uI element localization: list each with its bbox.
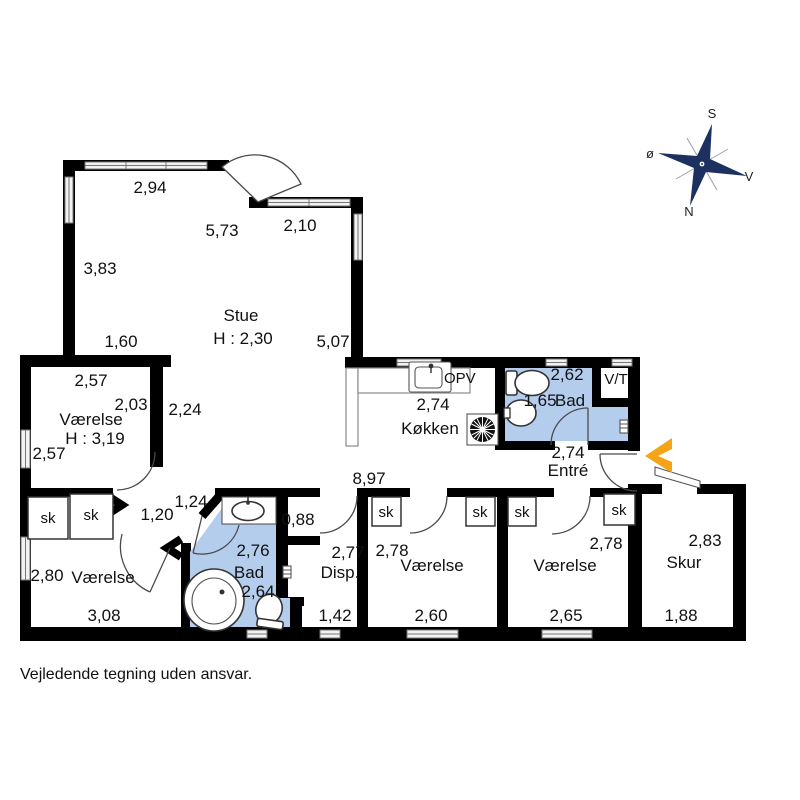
room-label-bl: Værelse bbox=[71, 568, 134, 587]
dim: 0,88 bbox=[281, 510, 314, 529]
dim: 2,76 bbox=[236, 541, 269, 560]
closet-label: sk bbox=[515, 504, 531, 521]
door-arc-room-right bbox=[552, 496, 590, 534]
room-label-skur: Skur bbox=[667, 553, 702, 572]
dim: 2,80 bbox=[30, 566, 63, 585]
room-label-vt: V/T bbox=[604, 371, 627, 388]
compass-label-v: V bbox=[745, 169, 754, 184]
dim: 1,42 bbox=[318, 606, 351, 625]
dim: 2,77 bbox=[331, 543, 364, 562]
window-icon bbox=[85, 162, 207, 169]
window-icon bbox=[247, 630, 267, 638]
dim: 2,64 bbox=[241, 582, 274, 601]
drain-icon bbox=[283, 566, 291, 578]
compass-rose-icon: S ø V N bbox=[646, 106, 754, 219]
window-icon bbox=[612, 359, 632, 366]
window-icon bbox=[320, 630, 340, 638]
dim: 2,78 bbox=[375, 541, 408, 560]
vanity-sink-icon bbox=[222, 497, 276, 524]
dim: 3,08 bbox=[87, 606, 120, 625]
window-icon bbox=[21, 537, 30, 580]
closet-label: sk bbox=[473, 504, 489, 521]
floor-plan-page: sk sk sk sk sk sk Stue H : 2,30 Værelse … bbox=[0, 0, 800, 800]
dim: 2,74 bbox=[551, 443, 584, 462]
dim: 5,73 bbox=[205, 221, 238, 240]
window-icon bbox=[21, 430, 30, 468]
dim: 2,83 bbox=[688, 531, 721, 550]
door-arc-disp bbox=[320, 496, 357, 533]
room-label-entre: Entré bbox=[548, 461, 589, 480]
dim: 2,74 bbox=[416, 395, 449, 414]
room-label-right: Værelse bbox=[533, 556, 596, 575]
room-label-tl: Værelse bbox=[59, 410, 122, 429]
compass-label-oe: ø bbox=[646, 146, 654, 161]
door-arc-stue-terrace bbox=[222, 155, 301, 202]
dim: 1,20 bbox=[140, 505, 173, 524]
disclaimer-text: Vejledende tegning uden ansvar. bbox=[20, 666, 252, 683]
drain-icon bbox=[620, 420, 628, 433]
dim: 2,03 bbox=[114, 395, 147, 414]
room-label-bath-top: Bad bbox=[555, 391, 585, 410]
dim: 5,07 bbox=[316, 332, 349, 351]
dim: 2,62 bbox=[550, 365, 583, 384]
room-label-disp: Disp. bbox=[321, 563, 360, 582]
room-height-stue: H : 2,30 bbox=[213, 329, 273, 348]
closet-label: sk bbox=[84, 507, 100, 524]
dim: 2,65 bbox=[549, 606, 582, 625]
door-arc-tl-room bbox=[117, 452, 155, 490]
floor-plan-drawing: sk sk sk sk sk sk Stue H : 2,30 Værelse … bbox=[0, 0, 800, 800]
dim: 2,10 bbox=[283, 216, 316, 235]
dim: 2,24 bbox=[168, 400, 201, 419]
dim: 1,24 bbox=[174, 492, 207, 511]
label-opv: OPV bbox=[444, 370, 476, 387]
window-icon bbox=[65, 177, 73, 223]
room-label-mid: Værelse bbox=[400, 556, 463, 575]
extractor-fan-icon bbox=[467, 414, 498, 445]
dim: 1,88 bbox=[664, 606, 697, 625]
door-arc-room-mid bbox=[410, 496, 447, 533]
dim: 8,97 bbox=[352, 469, 385, 488]
kitchen-counter-left bbox=[346, 368, 358, 446]
dim: 3,83 bbox=[83, 259, 116, 278]
compass-label-n: N bbox=[684, 204, 693, 219]
closet-label: sk bbox=[41, 510, 57, 527]
window-icon bbox=[542, 630, 592, 638]
dim: 2,57 bbox=[74, 371, 107, 390]
room-label-bath-bottom: Bad bbox=[234, 563, 264, 582]
closet-label: sk bbox=[379, 504, 395, 521]
window-icon bbox=[407, 630, 458, 638]
dim: 2,57 bbox=[32, 444, 65, 463]
dim: 2,78 bbox=[589, 534, 622, 553]
room-label-kitchen: Køkken bbox=[401, 419, 459, 438]
dim: 2,60 bbox=[414, 606, 447, 625]
window-icon bbox=[268, 199, 350, 206]
dim: 1,65 bbox=[523, 391, 556, 410]
room-height-tl: H : 3,19 bbox=[65, 429, 125, 448]
closet-label: sk bbox=[612, 502, 628, 519]
compass-label-s: S bbox=[708, 106, 717, 121]
room-label-stue: Stue bbox=[224, 306, 259, 325]
window-icon bbox=[354, 214, 362, 260]
dim: 2,94 bbox=[133, 178, 166, 197]
dim: 1,60 bbox=[104, 332, 137, 351]
